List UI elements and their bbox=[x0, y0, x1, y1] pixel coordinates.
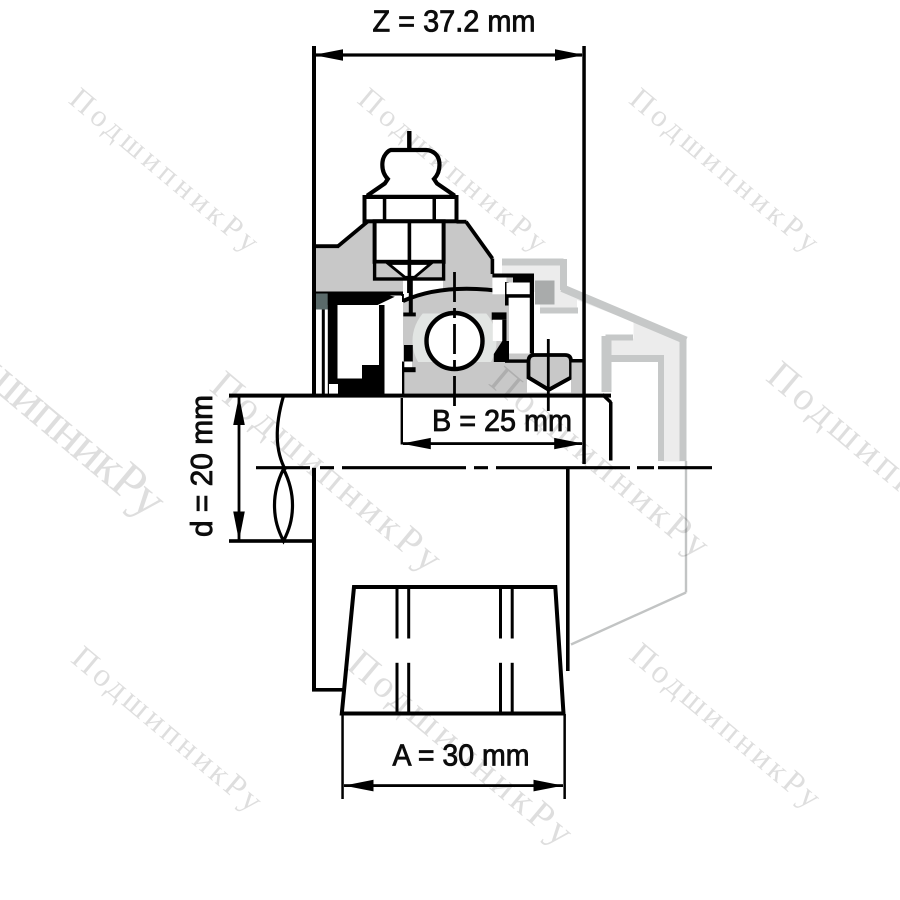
svg-text:d = 20 mm: d = 20 mm bbox=[184, 395, 219, 537]
svg-text:Z = 37.2 mm: Z = 37.2 mm bbox=[373, 4, 536, 39]
